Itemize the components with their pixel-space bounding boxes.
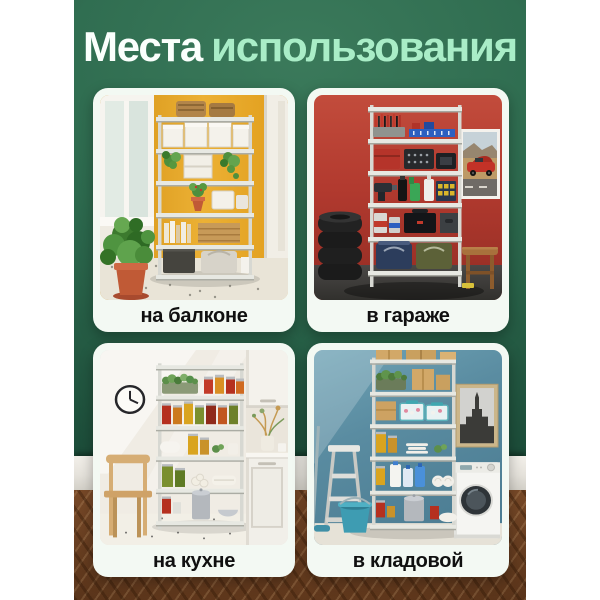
title-word-1: Места — [83, 23, 202, 70]
card-pantry: в кладовой — [307, 343, 509, 577]
poster: Местаиспользования — [74, 0, 526, 600]
kitchen-scene-illustration — [100, 350, 288, 545]
pantry-scene-illustration — [314, 350, 502, 545]
photo-garage — [314, 95, 502, 300]
page-title: Местаиспользования — [74, 25, 526, 69]
card-label-garage: в гараже — [314, 300, 502, 332]
card-balcony: на балконе — [93, 88, 295, 332]
title-word-2: использования — [211, 23, 517, 70]
photo-balcony — [100, 95, 288, 300]
balcony-scene-illustration — [100, 95, 288, 300]
photo-pantry — [314, 350, 502, 545]
card-kitchen: на кухне — [93, 343, 295, 577]
card-label-pantry: в кладовой — [314, 545, 502, 577]
card-garage: в гараже — [307, 88, 509, 332]
card-label-balcony: на балконе — [100, 300, 288, 332]
product-infographic: Местаиспользования — [0, 0, 600, 600]
photo-kitchen — [100, 350, 288, 545]
garage-scene-illustration — [314, 95, 502, 300]
card-label-kitchen: на кухне — [100, 545, 288, 577]
